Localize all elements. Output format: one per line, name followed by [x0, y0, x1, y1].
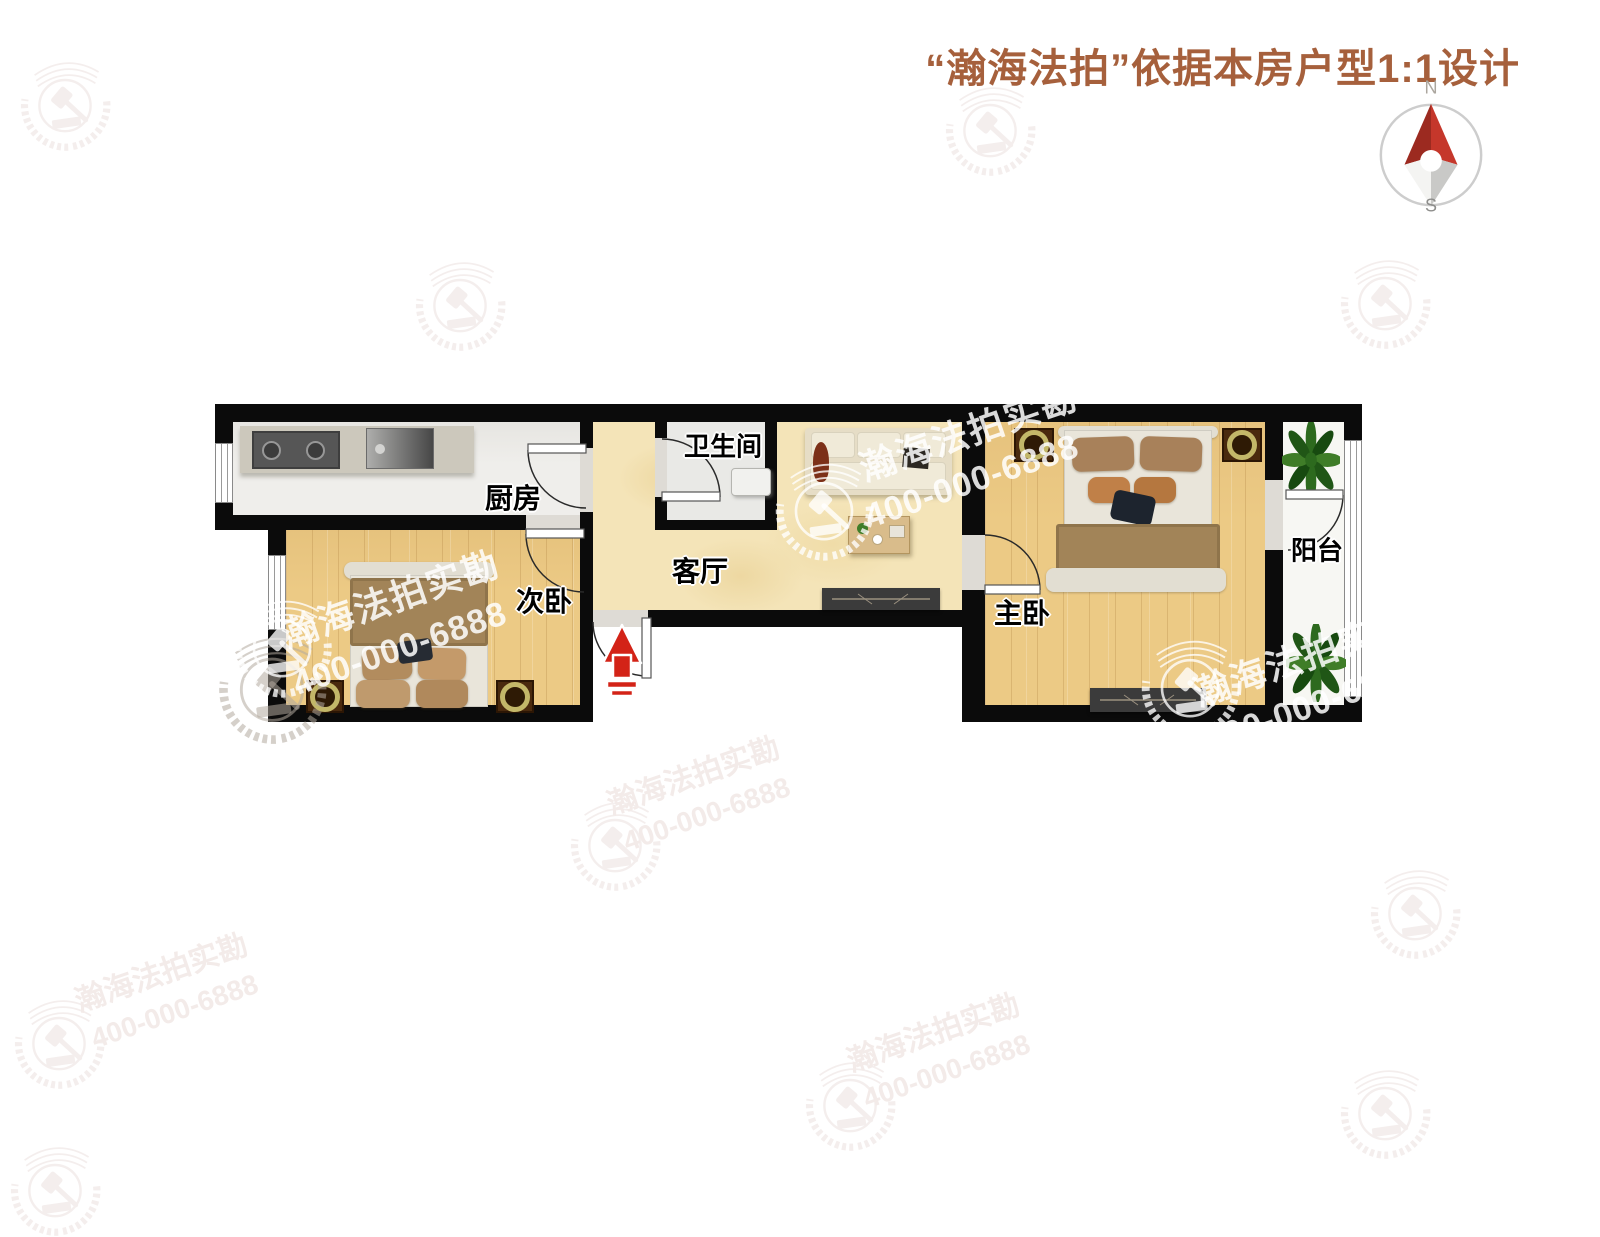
- room-label-balcony: 阳台: [1291, 531, 1343, 568]
- door-leaf: [526, 529, 584, 538]
- room-label-second-bedroom: 次卧: [516, 580, 572, 620]
- room-label-master-bedroom: 主卧: [994, 592, 1050, 632]
- door-leaf: [528, 444, 586, 453]
- room-label-kitchen: 厨房: [485, 477, 541, 517]
- room-label-bathroom: 卫生间: [684, 427, 762, 464]
- entrance-arrow-bar: [611, 690, 633, 696]
- door-leaf: [642, 618, 651, 678]
- door-leaf: [1286, 490, 1343, 499]
- door-arc: [985, 535, 1040, 590]
- page: { "header": { "title": "“瀚海法拍”依据本房户型1:1设…: [0, 0, 1600, 1200]
- door-leaf: [662, 492, 720, 501]
- entrance-arrow-shaft: [613, 655, 631, 678]
- entrance-arrow-bar: [607, 681, 637, 688]
- floor-plan: 厨房 卫生间 客厅 次卧 主卧 阳台 瀚海法拍实勘 400-000-6888 瀚…: [0, 0, 1600, 1200]
- room-label-living-room: 客厅: [672, 550, 728, 590]
